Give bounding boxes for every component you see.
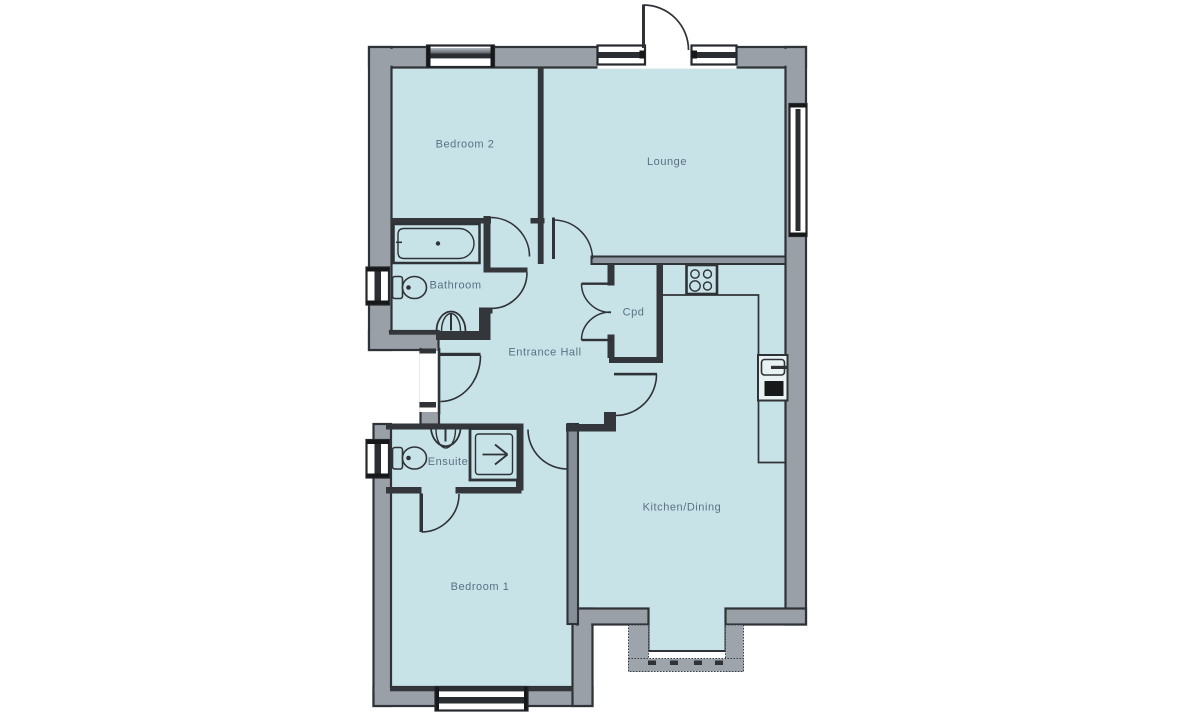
svg-text:Lounge: Lounge xyxy=(647,156,687,168)
svg-text:Ensuite: Ensuite xyxy=(428,456,469,468)
svg-text:Cpd: Cpd xyxy=(623,307,645,319)
svg-text:Kitchen/Dining: Kitchen/Dining xyxy=(643,502,722,514)
svg-text:Bathroom: Bathroom xyxy=(429,280,481,292)
svg-text:Entrance Hall: Entrance Hall xyxy=(508,347,581,359)
svg-text:Bedroom 2: Bedroom 2 xyxy=(436,139,495,151)
svg-text:Bedroom 1: Bedroom 1 xyxy=(451,581,510,593)
